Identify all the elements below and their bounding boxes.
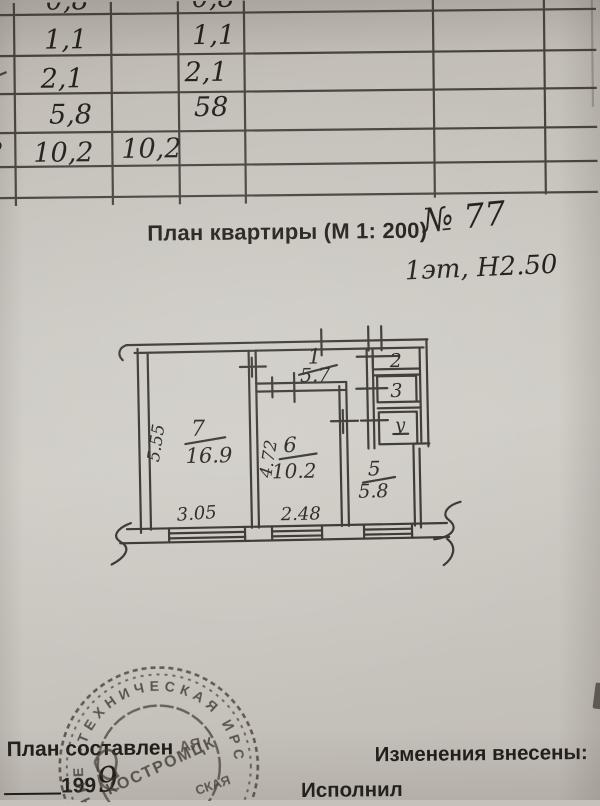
floor-height-note-handwritten: 1эт, Н2.50: [404, 250, 558, 287]
cell-value: 2,1: [183, 57, 227, 88]
changes-made-label: Изменения внесены:: [375, 741, 588, 767]
hall-area: 5.7: [300, 364, 332, 387]
door-mark: [272, 373, 295, 402]
cell-value: 10,2: [121, 133, 181, 165]
plan-title: План квартиры (М 1: 200): [147, 218, 427, 247]
cell-value: 0,8: [46, 0, 89, 17]
room5-area: 5.8: [358, 480, 389, 503]
edge-fragment-text: 2: [0, 137, 4, 168]
cell-value: 58: [194, 92, 229, 123]
room7-area: 16.9: [185, 443, 232, 468]
dim-left-height: 5.55: [144, 423, 170, 463]
room4-number: у: [394, 415, 406, 436]
break-squiggle-right-tail: [443, 539, 453, 565]
room7-number: 7: [191, 417, 205, 442]
top-left-hook: [119, 345, 127, 360]
dim-room7-width: 3.05: [176, 502, 217, 526]
cell-value: 1,1: [44, 24, 87, 55]
cell-value: 1,1: [192, 20, 235, 51]
cell-value: 2,1: [39, 63, 83, 94]
executor-label: Исполнил: [301, 778, 403, 803]
floor-plan-drawing: 1 5.7 7 16.9 6 10.2 5 5.8 2 3 у 5.55 4.7…: [93, 315, 468, 594]
cell-value: 10,2: [33, 137, 93, 169]
edge-fragment-mark: [0, 72, 7, 76]
round-ink-stamp: НИЕ -ТЕХНИЧЕСКАЯ ИРС АЯ КОСТРОМЦК СКАЯ: [28, 648, 290, 803]
apartment-number-handwritten: № 77: [420, 193, 507, 240]
cell-value: 0,8: [192, 0, 235, 14]
photo-edge-artifact: [592, 682, 600, 709]
photographed-document: 0,8 0,8 1,1 1,1 2,1 2,1 5,8 58 10,2 10,2…: [0, 0, 600, 803]
dim-room6-width: 2.48: [280, 503, 321, 525]
door-mark: [240, 357, 266, 376]
room6-number: 6: [283, 433, 297, 457]
cell-value: 5,8: [49, 99, 92, 130]
break-squiggle-right: [434, 502, 462, 540]
area-summary-table: 0,8 0,8 1,1 1,1 2,1 2,1 5,8 58 10,2 10,2…: [0, 0, 598, 209]
room3-number: 3: [390, 380, 403, 402]
window-sills: [169, 529, 412, 539]
room5-number: 5: [368, 456, 381, 480]
door-mark: [331, 410, 358, 434]
room2-number: 2: [389, 350, 403, 372]
table-handwritten-values: 0,8 0,8 1,1 1,1 2,1 2,1 5,8 58 10,2 10,2…: [0, 0, 237, 169]
